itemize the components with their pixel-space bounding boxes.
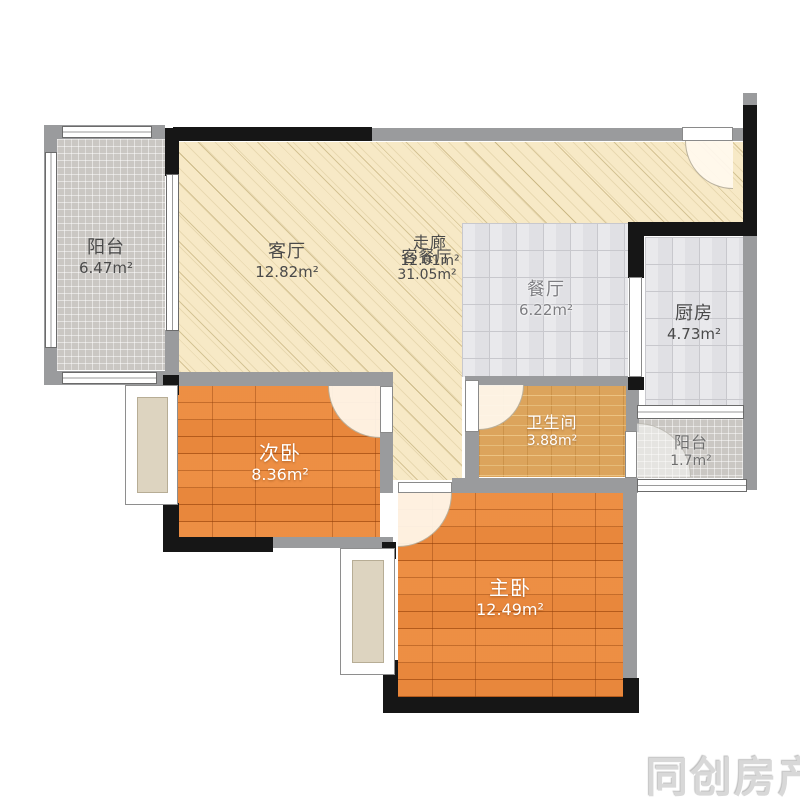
wall [452, 478, 638, 493]
room-area: 31.05m² [397, 267, 456, 284]
room-area: 6.47m² [79, 259, 133, 277]
room-label-living: 客厅 12.82m² [255, 241, 319, 281]
wall [623, 493, 637, 683]
room-name: 客餐厅 [397, 247, 456, 267]
wall [164, 372, 393, 386]
room-area: 3.88m² [526, 433, 577, 450]
wall [743, 105, 757, 227]
room-name: 卫生间 [526, 413, 577, 433]
wall [628, 377, 644, 390]
door-leaf-balcony-right [625, 431, 637, 478]
room-area: 8.36m² [251, 465, 309, 485]
room-label-bathroom: 卫生间 3.88m² [526, 413, 577, 450]
room-name: 阳台 [670, 433, 712, 453]
bay-window-sill [137, 397, 168, 493]
room-name: 餐厅 [519, 279, 573, 301]
door-leaf-entrance [682, 127, 733, 141]
wall [628, 222, 757, 236]
room-area: 1.7m² [670, 453, 712, 470]
window [637, 479, 747, 492]
wall [733, 128, 743, 141]
wall [383, 697, 639, 713]
room-label-bedroom-second: 次卧 8.36m² [251, 441, 309, 485]
door-leaf-bedroom-second [380, 386, 393, 433]
window [62, 372, 157, 384]
wall [163, 537, 273, 552]
room-name: 阳台 [79, 237, 133, 259]
wall [372, 128, 682, 141]
door-leaf-kitchen [629, 277, 642, 377]
wall [623, 678, 639, 700]
room-label-kitchen: 厨房 4.73m² [667, 303, 721, 343]
watermark-text: 同创房产 [646, 744, 800, 805]
wall [165, 128, 179, 176]
room-label-dining: 餐厅 6.22m² [519, 279, 573, 319]
room-name: 厨房 [667, 303, 721, 325]
room-area: 12.82m² [255, 263, 319, 281]
window [62, 126, 152, 138]
room-name: 次卧 [251, 441, 309, 465]
door-leaf-bedroom-master [398, 482, 452, 493]
room-label-balcony-left: 阳台 6.47m² [79, 237, 133, 277]
room-label-balcony-right: 阳台 1.7m² [670, 433, 712, 470]
sliding-door-balcony-living [166, 174, 179, 331]
wall [173, 127, 372, 141]
wall [743, 232, 757, 490]
window [45, 152, 57, 348]
bay-window-sill [352, 560, 384, 663]
room-area: 12.49m² [476, 600, 544, 620]
room-area: 4.73m² [667, 325, 721, 343]
room-area: 6.22m² [519, 301, 573, 319]
wall [273, 537, 393, 548]
room-label-bedroom-master: 主卧 12.49m² [476, 576, 544, 620]
room-label-living-dining: 客餐厅 31.05m² [397, 247, 456, 284]
wall [380, 432, 393, 493]
wall [628, 236, 644, 278]
wall [465, 432, 479, 480]
window-kitchen-balcony [637, 405, 744, 419]
room-name: 主卧 [476, 576, 544, 600]
door-leaf-bathroom [465, 380, 479, 432]
room-name: 客厅 [255, 241, 319, 263]
